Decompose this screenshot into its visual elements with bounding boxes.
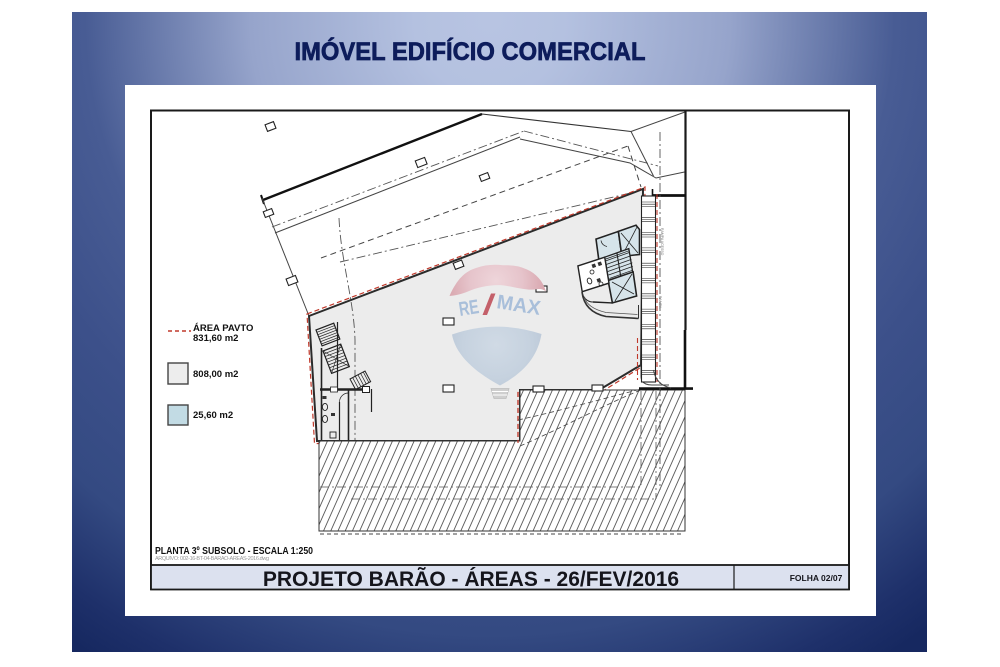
svg-text:25,60 m2: 25,60 m2	[193, 410, 233, 421]
svg-text:808,00 m2: 808,00 m2	[193, 369, 238, 380]
svg-text:831,60 m2: 831,60 m2	[193, 333, 238, 344]
svg-text:PROJETO BARÃO - ÁREAS - 26/FEV: PROJETO BARÃO - ÁREAS - 26/FEV/2016	[263, 568, 679, 591]
svg-text:RAMPA: RAMPA	[658, 296, 662, 309]
svg-text:ARQUIVO: 002-16-BT-04-BARAO-AR: ARQUIVO: 002-16-BT-04-BARAO-AREAS-2016.d…	[155, 556, 269, 562]
svg-text:FOLHA 02/07: FOLHA 02/07	[790, 573, 843, 583]
svg-text:RE: RE	[457, 296, 480, 321]
svg-text:IMÓVEL EDIFÍCIO COMERCIAL: IMÓVEL EDIFÍCIO COMERCIAL	[295, 36, 646, 66]
svg-text:RAMPA ACESSO: RAMPA ACESSO	[660, 228, 664, 256]
